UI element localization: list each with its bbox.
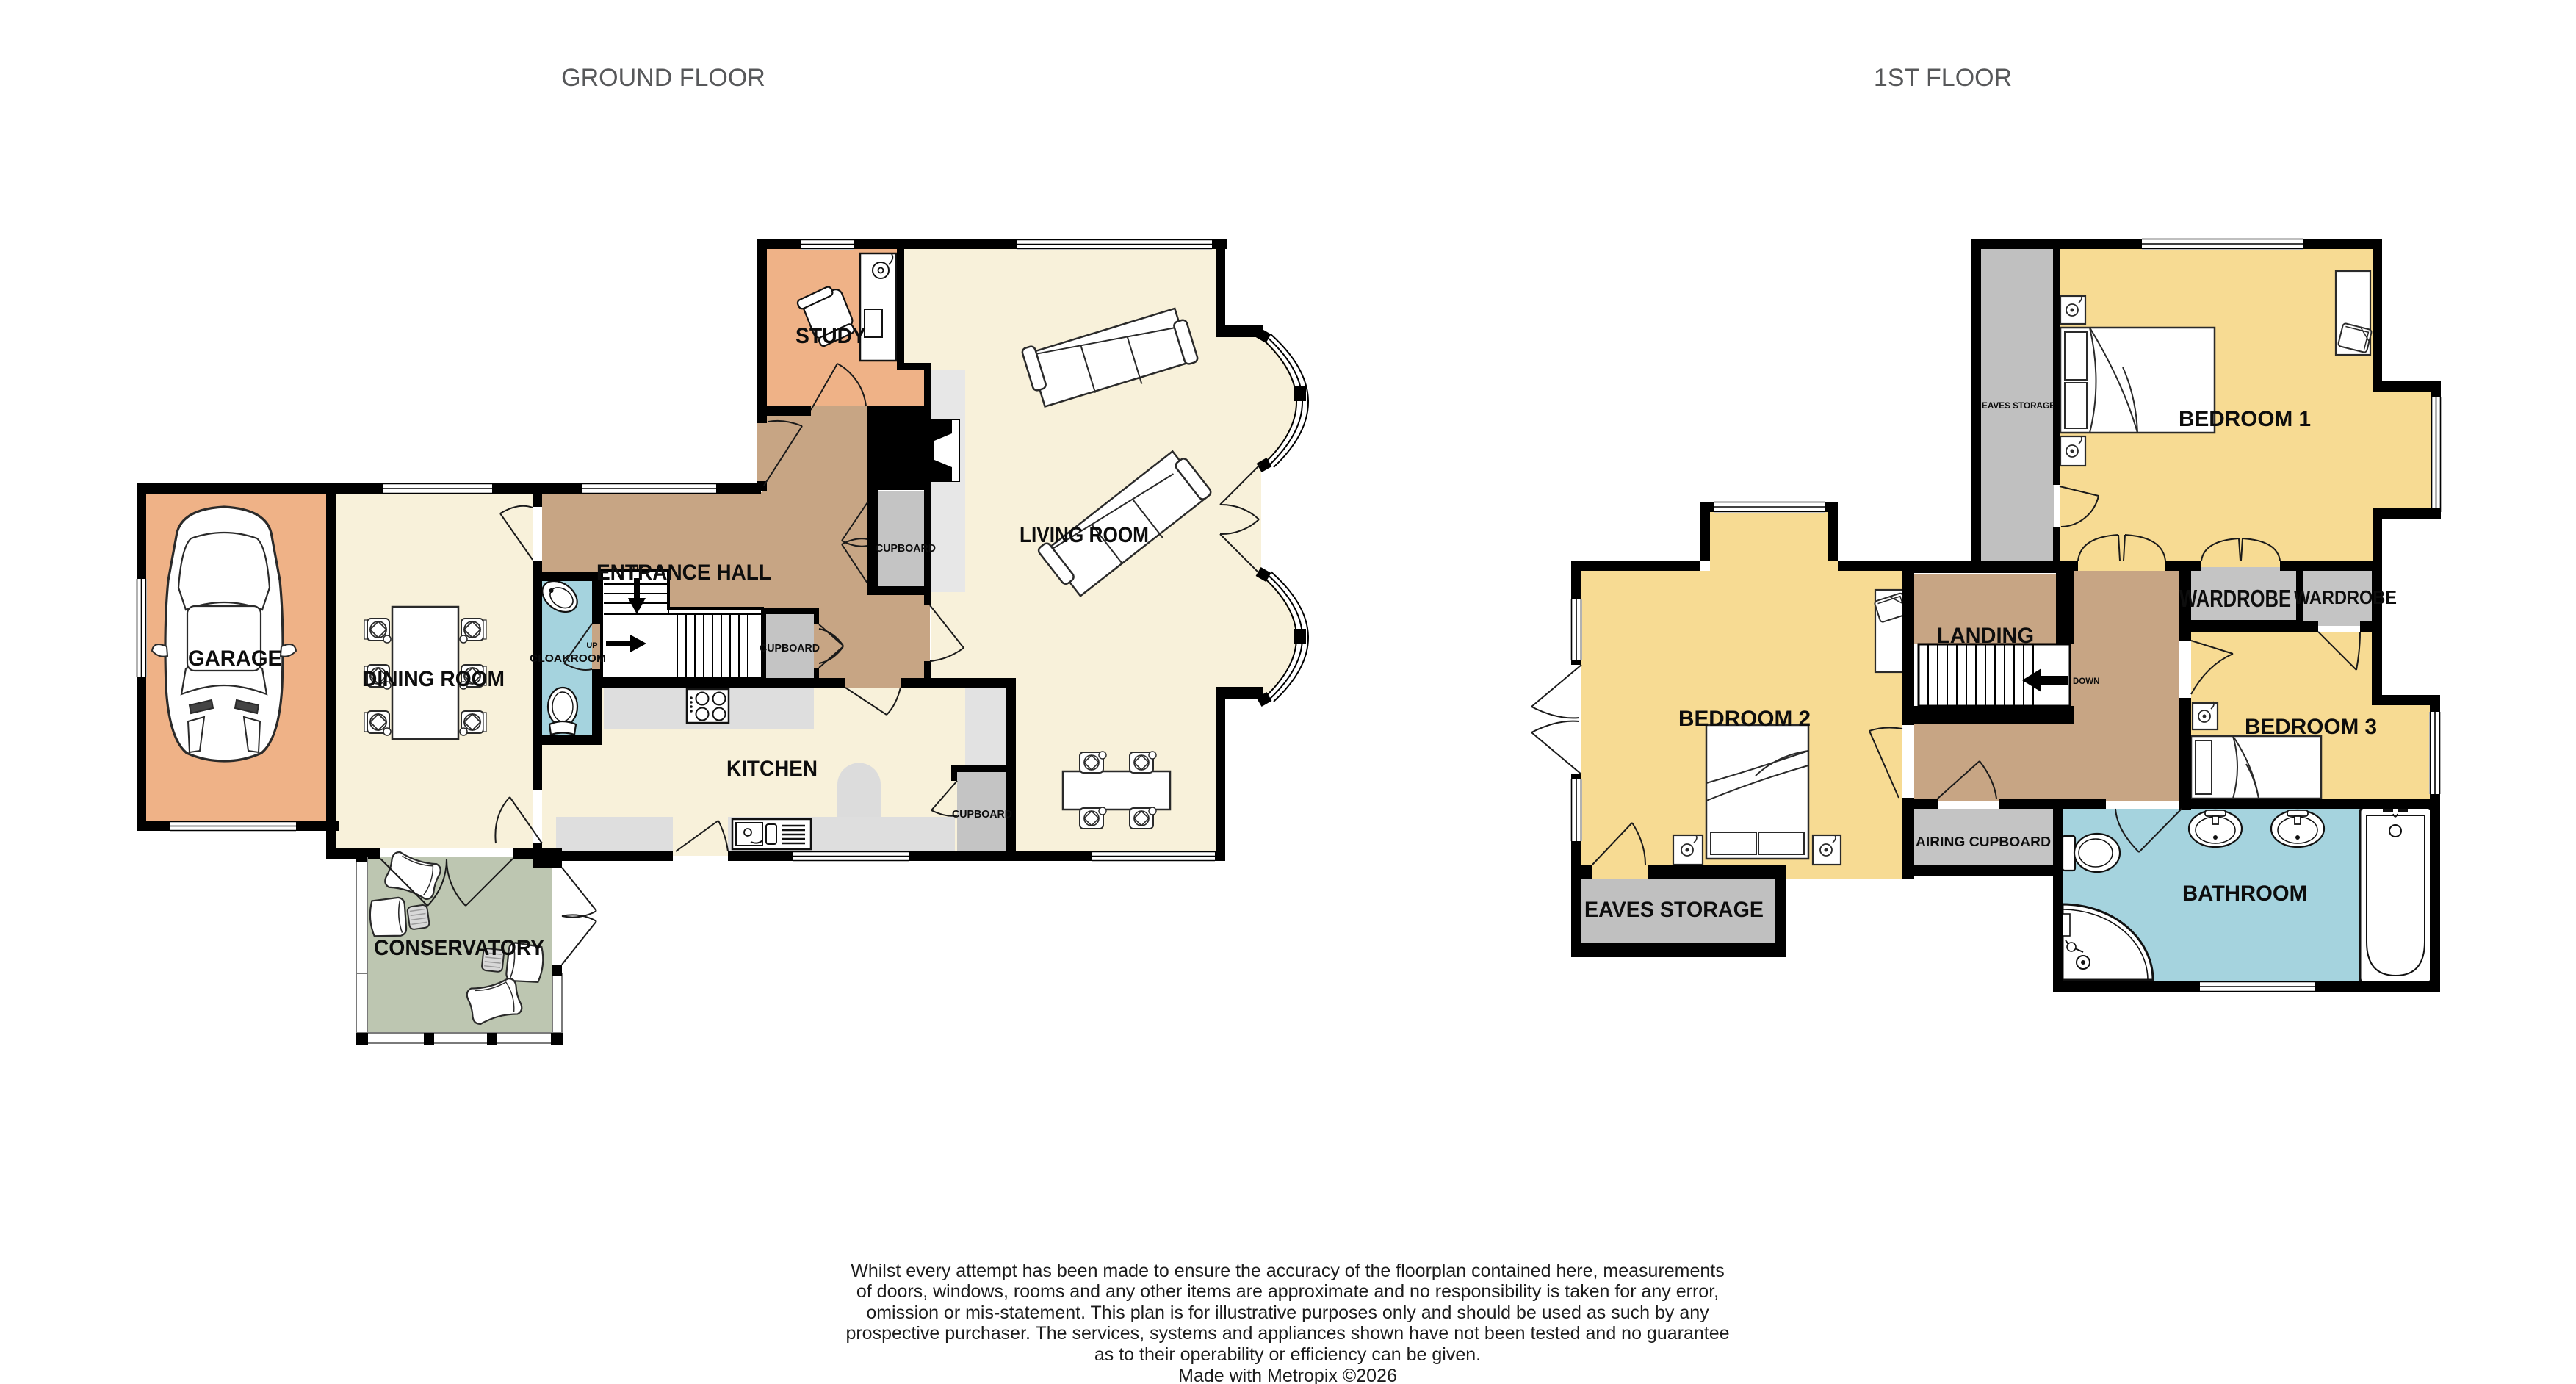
svg-text:GARAGE: GARAGE <box>188 646 282 671</box>
svg-text:DOWN: DOWN <box>2073 677 2099 686</box>
svg-text:UP: UP <box>586 641 597 650</box>
svg-text:BEDROOM 3: BEDROOM 3 <box>2245 715 2377 739</box>
svg-text:BATHROOM: BATHROOM <box>2182 882 2307 906</box>
svg-text:omission or mis-statement. Thi: omission or mis-statement. This plan is … <box>866 1302 1709 1323</box>
svg-text:STUDY: STUDY <box>795 324 866 348</box>
svg-text:BEDROOM 2: BEDROOM 2 <box>1678 707 1811 731</box>
svg-text:CUPBOARD: CUPBOARD <box>876 543 936 555</box>
svg-text:CUPBOARD: CUPBOARD <box>952 809 1012 821</box>
svg-text:ENTRANCE HALL: ENTRANCE HALL <box>596 561 771 585</box>
svg-text:as to their operability or eff: as to their operability or efficiency ca… <box>1094 1344 1481 1365</box>
svg-text:KITCHEN: KITCHEN <box>726 757 818 781</box>
svg-text:LIVING ROOM: LIVING ROOM <box>1020 523 1149 547</box>
svg-text:DINING ROOM: DINING ROOM <box>362 667 505 691</box>
svg-text:prospective purchaser. The ser: prospective purchaser. The services, sys… <box>845 1323 1729 1344</box>
svg-text:1ST FLOOR: 1ST FLOOR <box>1874 64 2012 92</box>
svg-text:WARDROBE: WARDROBE <box>2294 586 2397 608</box>
svg-text:EAVES STORAGE: EAVES STORAGE <box>1982 402 2055 411</box>
svg-text:AIRING CUPBOARD: AIRING CUPBOARD <box>1916 835 2051 849</box>
svg-text:LANDING: LANDING <box>1937 624 2034 648</box>
svg-text:CONSERVATORY: CONSERVATORY <box>374 936 544 960</box>
svg-text:EAVES STORAGE: EAVES STORAGE <box>1584 898 1764 922</box>
svg-text:WARDROBE: WARDROBE <box>2179 585 2291 612</box>
svg-text:BEDROOM 1: BEDROOM 1 <box>2179 407 2311 431</box>
svg-text:of doors, windows, rooms and a: of doors, windows, rooms and any other i… <box>856 1281 1719 1302</box>
svg-text:Made with Metropix ©2026: Made with Metropix ©2026 <box>1178 1366 1397 1384</box>
svg-text:GROUND FLOOR: GROUND FLOOR <box>561 64 765 92</box>
svg-text:CLOAKROOM: CLOAKROOM <box>530 653 606 665</box>
svg-text:Whilst every attempt has been: Whilst every attempt has been made to en… <box>851 1261 1725 1281</box>
svg-text:CUPBOARD: CUPBOARD <box>760 643 820 655</box>
